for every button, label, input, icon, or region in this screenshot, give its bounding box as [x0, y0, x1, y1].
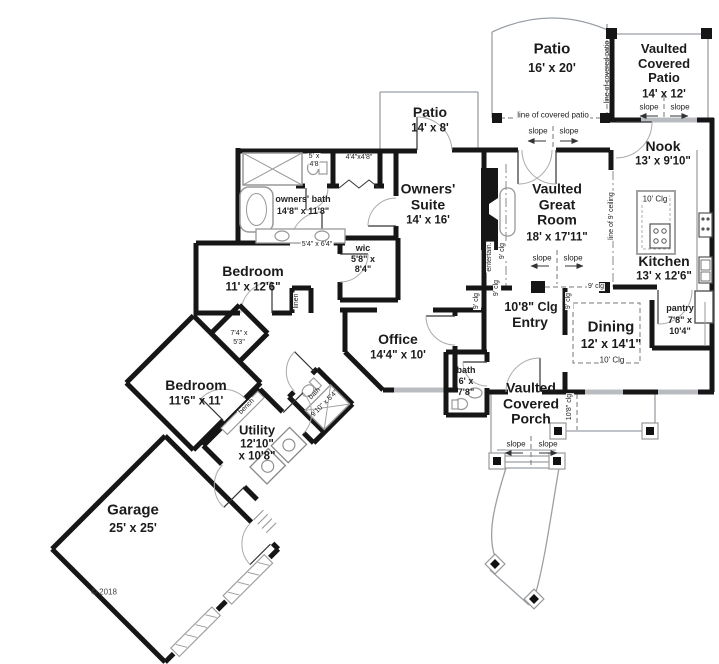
slope-label: slope [537, 441, 558, 450]
entertain-label: entertain. [486, 241, 494, 272]
room-dims-pantry-1: 7'8" x [668, 315, 692, 325]
room-dims-garage: 25' x 25' [109, 521, 157, 535]
room-dims-kitchen: 13' x 12'6" [636, 271, 692, 284]
room-label-patio-small: Patio [413, 105, 447, 121]
island-ceiling-note: 10' Clg [642, 196, 669, 205]
slope-label: slope [531, 255, 552, 264]
room-dims-nook: 13' x 9'10" [635, 156, 691, 169]
room-label-pantry: pantry [666, 303, 694, 313]
ceiling-note-9clg: 9' clg [499, 242, 507, 260]
slope-label: slope [562, 255, 583, 264]
ceiling-note-9clg: 9' clg [473, 292, 481, 310]
room-label-owners-bath: owners' bath [275, 194, 330, 204]
bed2-closet-dims-1: 7'4" x [229, 330, 248, 338]
room-label-patio-large: Patio [534, 42, 571, 59]
room-label-office: Office [378, 332, 418, 348]
room-label-kitchen: Kitchen [638, 254, 689, 270]
room-label-dining: Dining [588, 320, 635, 337]
slope-label: slope [638, 104, 659, 113]
room-dims-bedroom2: 11'6" x 11' [169, 396, 223, 409]
room-label-porch: Vaulted Covered Porch [486, 380, 576, 427]
linen-label: linen [293, 293, 301, 310]
room-label-garage: Garage [107, 503, 159, 520]
room-dims-pantry-2: 10'4" [669, 326, 690, 336]
ceiling-note-9clg: 9' clg [493, 279, 501, 297]
room-dims-patio-small: 14' x 8' [411, 123, 448, 136]
note-line-of-covered-patio-v: line of covered patio [604, 41, 612, 104]
copyright-note: © 2018 [91, 589, 117, 598]
suite-closet-dims: 4'4"x4'8" [345, 154, 374, 162]
note-line-of-covered-patio: line of covered patio [516, 112, 590, 121]
toilet-room-dims-1: 5' x [308, 153, 321, 161]
room-label-owners-suite: Owners' Suite [395, 181, 461, 212]
hall-dims: 5'4" x 6'4" [301, 241, 334, 249]
room-label-covered-patio: Vaulted Covered Patio [631, 42, 697, 86]
room-dims-utility-1: 12'10" [240, 439, 274, 452]
room-label-nook: Nook [646, 139, 681, 155]
room-dims-wic-1: 5'8" x [351, 254, 375, 264]
room-label-great-room: Vaulted Great Room [526, 181, 588, 228]
ceiling-note-10-8clg: 10'8" clg [566, 393, 574, 421]
entry-ceiling-note: 10'8" Clg [504, 300, 557, 314]
room-label-utility: Utility [239, 424, 275, 439]
garage-wing [6, 280, 392, 664]
room-label-bedroom1: Bedroom [222, 264, 283, 280]
room-dims-bath-hall-2: 7'8" [458, 387, 474, 397]
entertainment-center [481, 168, 515, 250]
note-line-of-9-ceiling: line of 9' ceiling [608, 191, 616, 241]
dining-ceiling-note: 10' Clg [599, 357, 626, 366]
slope-label: slope [505, 441, 526, 450]
slope-label: slope [669, 104, 690, 113]
room-dims-covered-patio: 14' x 12' [642, 89, 686, 102]
room-dims-owners-bath: 14'8" x 11'8" [277, 206, 329, 216]
room-label-bedroom2: Bedroom [165, 378, 226, 394]
bed2-closet-dims-2: 5'3" [232, 339, 246, 347]
slope-label: slope [527, 128, 548, 137]
room-label-wic: wic [356, 243, 371, 253]
ceiling-note-9clg: 9' clg [565, 292, 573, 310]
toilet-room-dims-2: 4'8 [308, 161, 319, 169]
room-dims-office: 14'4" x 10' [370, 350, 426, 363]
room-dims-dining: 12' x 14'1" [581, 337, 642, 351]
room-label-bath-hall: bath [457, 365, 476, 375]
porch-posts [485, 423, 658, 609]
room-dims-great-room: 18' x 17'11" [526, 232, 587, 245]
room-dims-bath-hall-1: 6' x [459, 376, 474, 386]
slope-label: slope [558, 128, 579, 137]
room-dims-patio-large: 16' x 20' [528, 61, 576, 75]
floorplan-page: Patio 16' x 20' Vaulted Covered Patio 14… [0, 0, 719, 664]
room-dims-owners-suite: 14' x 16' [406, 215, 450, 228]
ceiling-note-9clg: 9' clg [587, 283, 605, 291]
room-dims-bedroom1: 11' x 12'6" [225, 282, 280, 295]
room-label-entry: Entry [512, 315, 548, 331]
room-dims-utility-2: x 10'8" [239, 451, 276, 464]
room-dims-wic-2: 8'4" [355, 264, 371, 274]
